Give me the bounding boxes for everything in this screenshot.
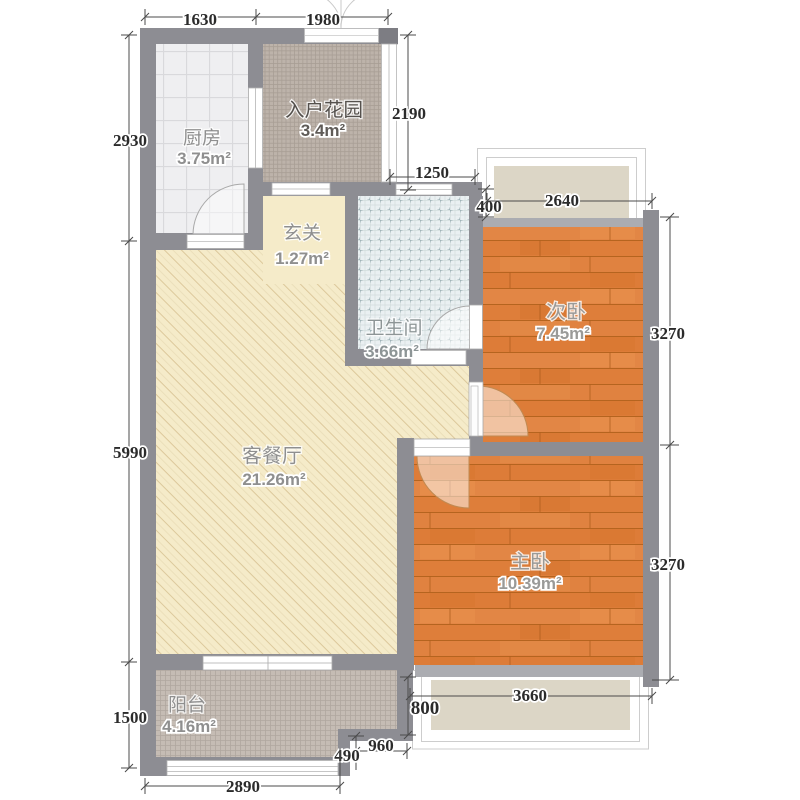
svg-text:10.39m²: 10.39m² [498, 574, 562, 593]
svg-text:960: 960 [368, 736, 394, 755]
svg-text:5990: 5990 [113, 443, 147, 462]
svg-text:4.16m²: 4.16m² [162, 717, 216, 736]
svg-text:490: 490 [334, 746, 360, 765]
svg-text:2930: 2930 [113, 131, 147, 150]
svg-text:3270: 3270 [651, 555, 685, 574]
svg-text:7.45m²: 7.45m² [536, 324, 590, 343]
svg-text:1630: 1630 [183, 10, 217, 29]
svg-text:3.4m²: 3.4m² [301, 121, 346, 140]
svg-text:400: 400 [476, 197, 502, 216]
svg-text:21.26m²: 21.26m² [242, 470, 306, 489]
svg-text:3660: 3660 [513, 686, 547, 705]
svg-text:2640: 2640 [545, 191, 579, 210]
svg-text:3270: 3270 [651, 324, 685, 343]
svg-text:2890: 2890 [226, 777, 260, 796]
svg-text:800: 800 [411, 698, 440, 719]
svg-text:1500: 1500 [113, 708, 147, 727]
svg-text:3.75m²: 3.75m² [177, 149, 231, 168]
svg-text:1980: 1980 [306, 10, 340, 29]
svg-text:2190: 2190 [392, 104, 426, 123]
svg-text:1250: 1250 [415, 163, 449, 182]
svg-text:3.66m²: 3.66m² [365, 342, 419, 361]
svg-text:1.27m²: 1.27m² [275, 249, 329, 268]
